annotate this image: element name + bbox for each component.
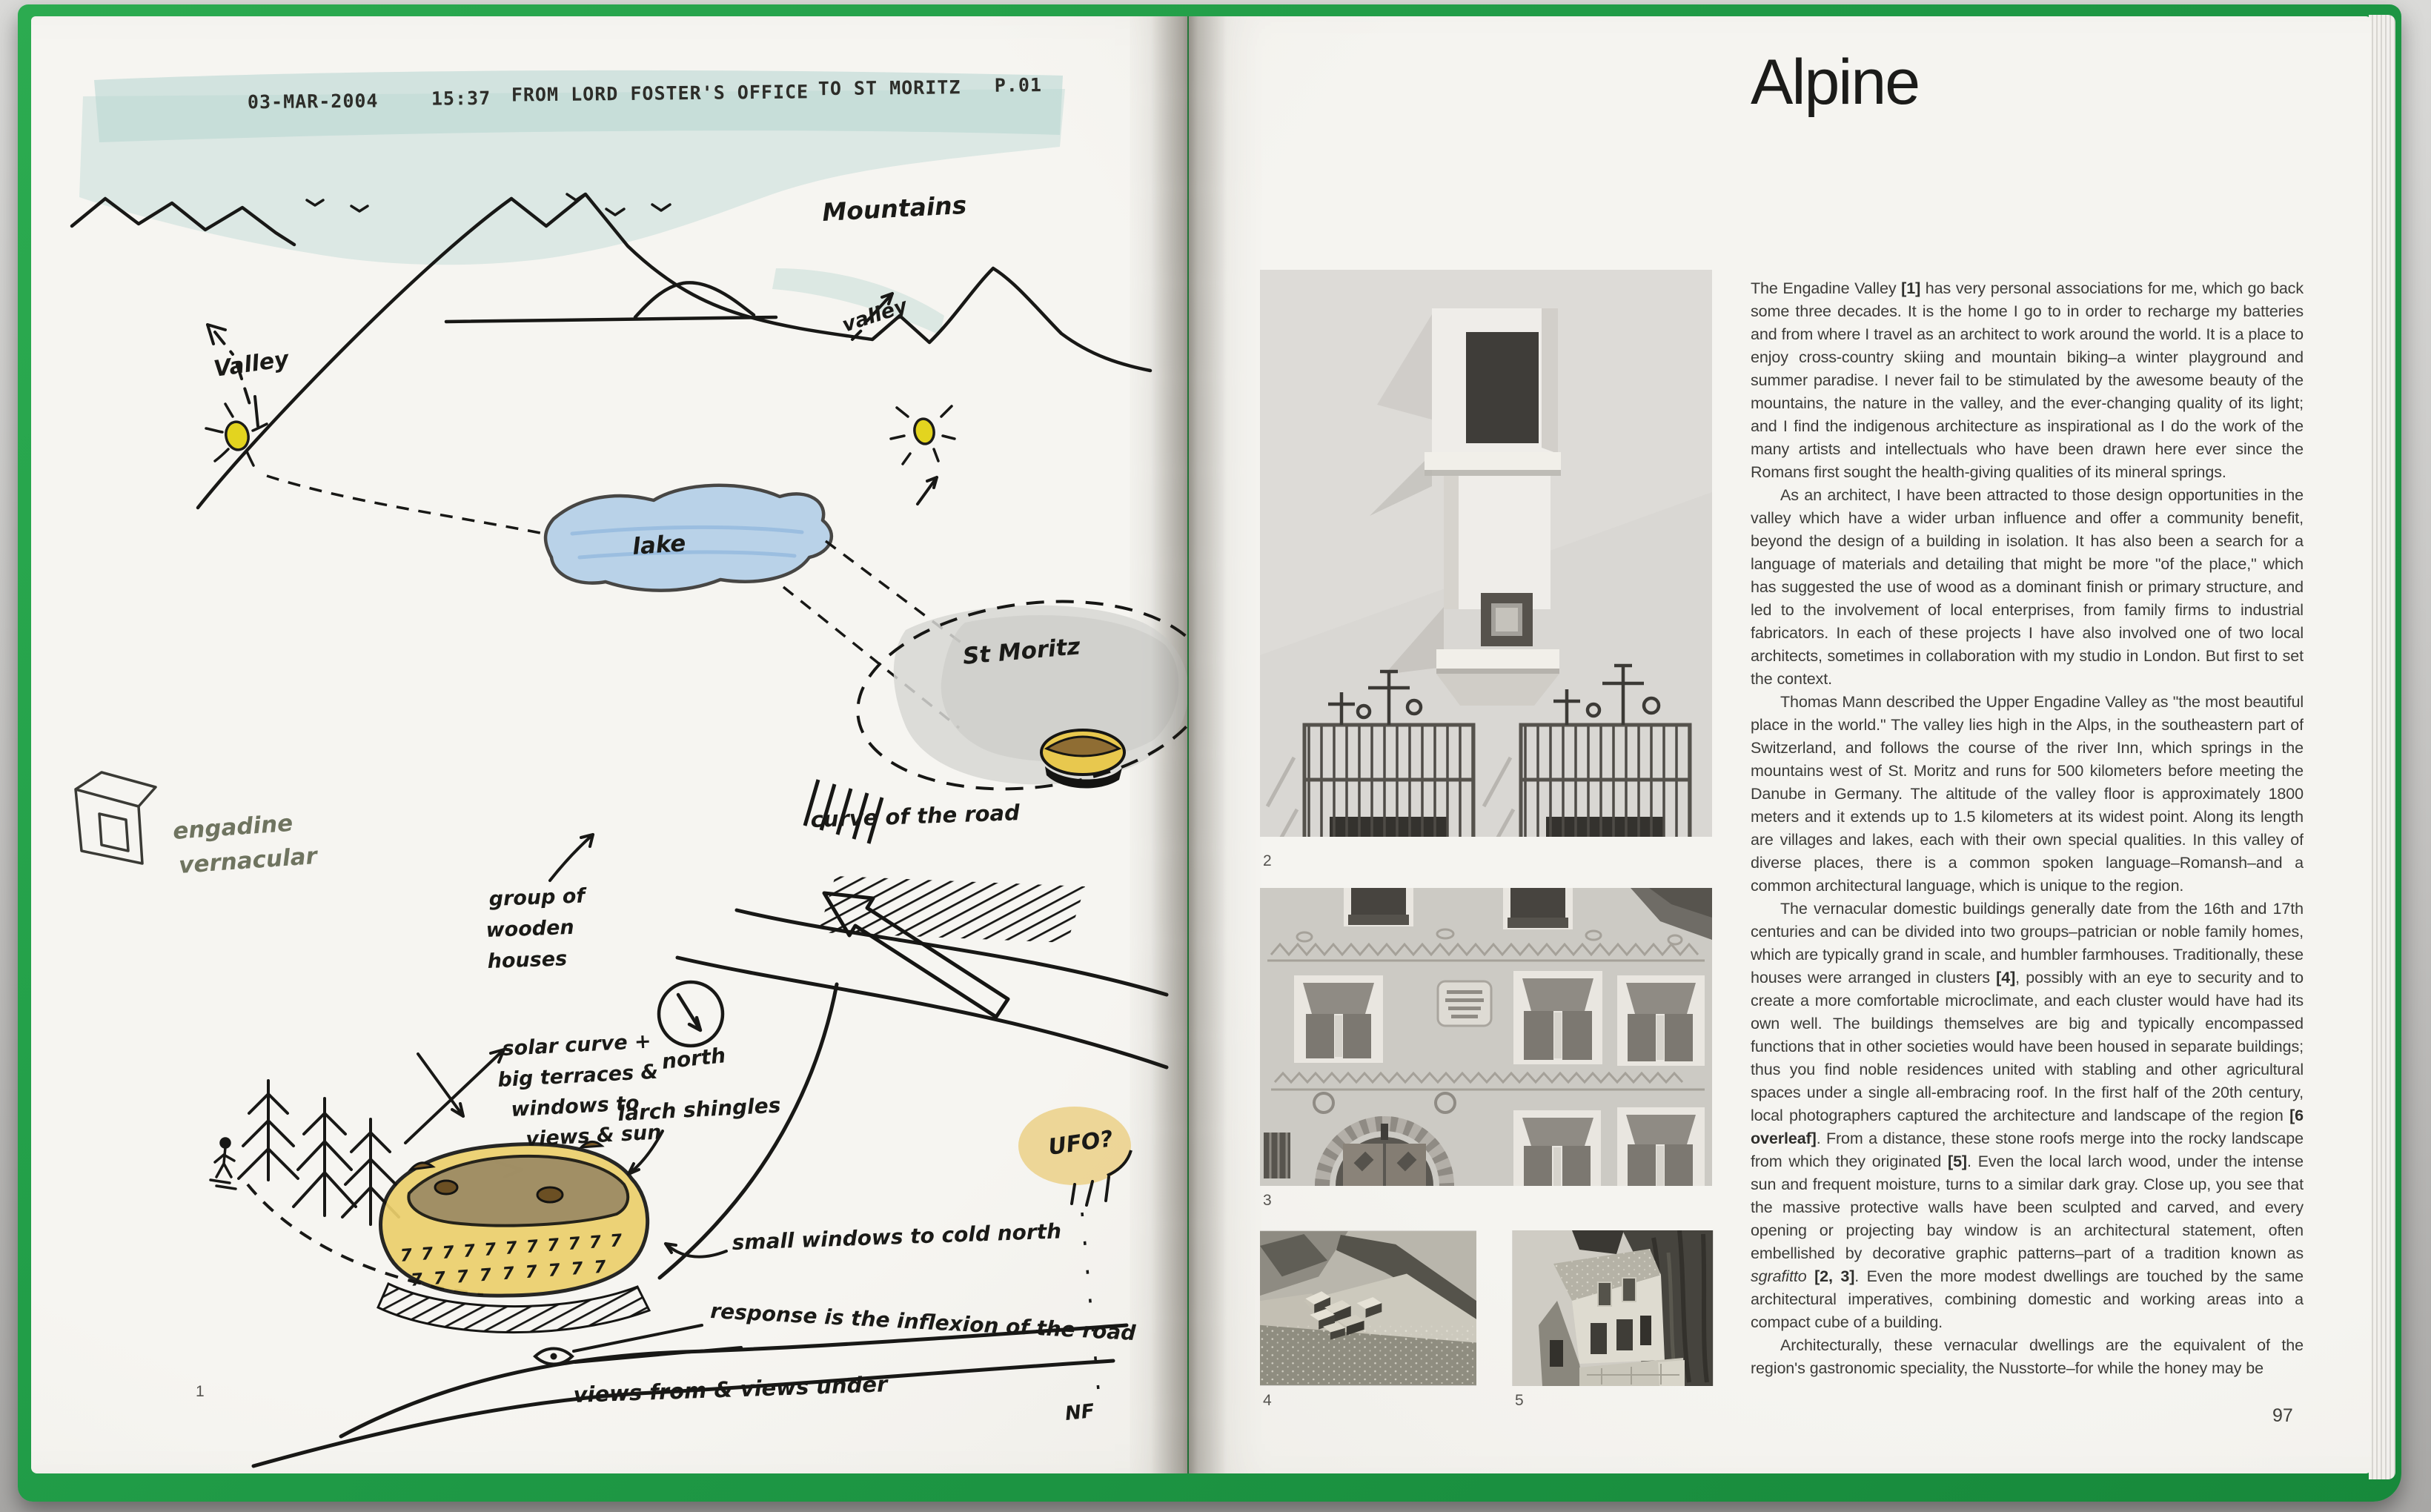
figure-number-2: 2 (1263, 852, 1272, 870)
label-initials-nf: NF (1064, 1400, 1096, 1425)
valley-left-group: Valley (206, 325, 291, 465)
label-engadine-1: engadine (172, 810, 293, 845)
figure-number-1: 1 (196, 1383, 205, 1401)
label-solar-2: big terraces & (497, 1061, 659, 1092)
figure-number-4: 4 (1263, 1392, 1272, 1410)
building-sketch: 7 7 7 7 7 7 7 7 7 7 7 7 7 7 7 7 7 7 7 7 (378, 1141, 649, 1332)
skier-figure-icon (210, 1138, 236, 1189)
fax-from: FROM LORD FOSTER'S OFFICE (511, 81, 809, 105)
fax-page-code: P.01 (995, 74, 1043, 96)
direction-arrows (405, 1050, 504, 1143)
photo-stone-house-cliff (1512, 1230, 1714, 1386)
bun-building-sketch (1041, 730, 1124, 788)
label-group-1: group of (488, 884, 588, 911)
photo-village-cluster (1260, 1230, 1476, 1386)
label-north: north (660, 1043, 726, 1074)
label-group-2: wooden (485, 916, 574, 942)
fax-sketch-drawing: 03-MAR-2004 15:37 FROM LORD FOSTER'S OFF… (31, 16, 1187, 1473)
figure-number-5: 5 (1515, 1392, 1524, 1410)
engadine-vernacular-group: engadine vernacular (76, 772, 319, 879)
page-stack-edge (2369, 15, 2395, 1479)
label-engadine-2: vernacular (178, 843, 319, 879)
photo-sgraffito-facade (1260, 888, 1712, 1186)
group-of-houses-label: group of wooden houses (485, 835, 593, 973)
article-text: The Engadine Valley [1] has very persona… (1751, 277, 2304, 1425)
book-cover: 03-MAR-2004 15:37 FROM LORD FOSTER'S OFF… (18, 4, 2401, 1502)
photo-white-facade-windows (1260, 270, 1712, 837)
cube-doodle (76, 772, 156, 863)
article-paragraph: Thomas Mann described the Upper Engadine… (1751, 691, 2304, 898)
article-paragraph: Architecturally, these vernacular dwelli… (1751, 1334, 2304, 1380)
eye-icon (535, 1325, 741, 1365)
fax-to: TO ST MORITZ (818, 76, 961, 99)
compass-north-icon: north (659, 982, 727, 1074)
label-mountains: Mountains (821, 190, 967, 227)
small-windows-note: small windows to cold north (666, 1219, 1062, 1257)
fax-time: 15:37 (431, 87, 491, 110)
label-curve-of-road: curve of the road (810, 800, 1021, 832)
label-solar-1: solar curve + (502, 1029, 652, 1060)
ufo-blob: UFO? (1018, 1107, 1131, 1390)
label-larch: larch shingles (617, 1093, 781, 1126)
page-number: 97 (2272, 1405, 2293, 1427)
article-paragraph: As an architect, I have been attracted t… (1751, 484, 2304, 691)
right-page: Alpine (1189, 16, 2372, 1473)
left-page: 03-MAR-2004 15:37 FROM LORD FOSTER'S OFF… (31, 16, 1187, 1473)
label-group-3: houses (487, 947, 567, 973)
sun-icon (891, 406, 955, 464)
article-paragraph: The vernacular domestic buildings genera… (1751, 898, 2304, 1334)
label-valley-left: Valley (212, 346, 291, 382)
label-small-windows: small windows to cold north (732, 1219, 1061, 1255)
label-lake: lake (631, 530, 686, 560)
article-paragraph: The Engadine Valley [1] has very persona… (1751, 277, 2304, 484)
chapter-title: Alpine (1751, 46, 1919, 119)
lake-sketch: lake (545, 485, 832, 591)
fax-date: 03-MAR-2004 (248, 90, 379, 113)
figure-number-3: 3 (1263, 1192, 1272, 1210)
